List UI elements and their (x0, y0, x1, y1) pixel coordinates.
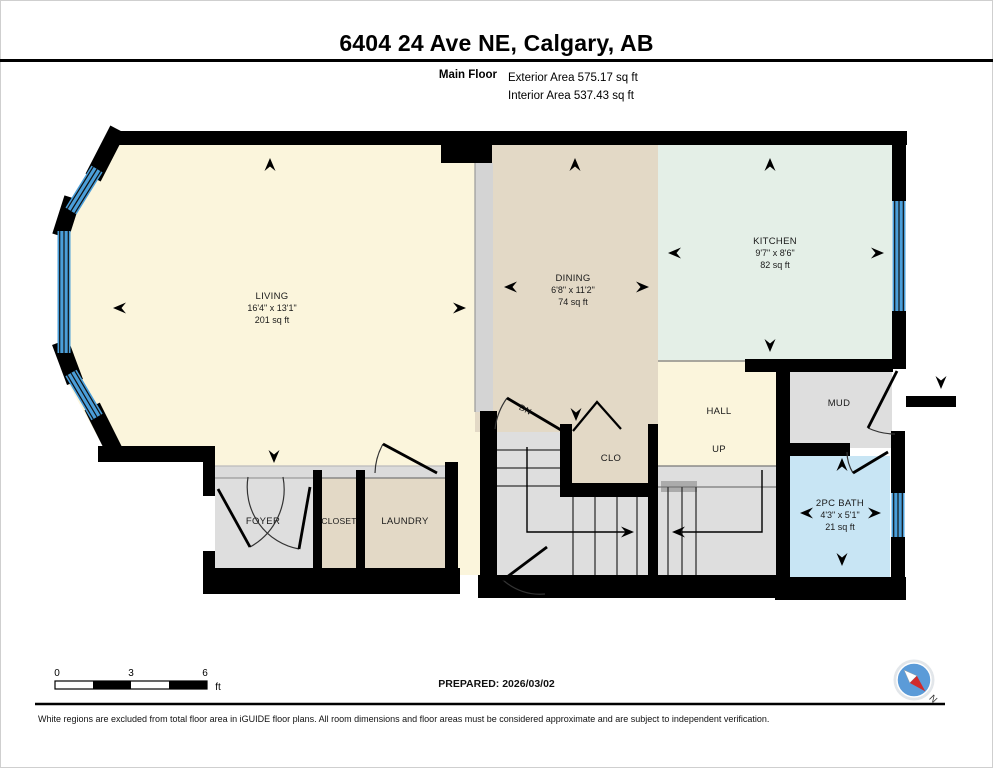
clo-label: CLO (601, 453, 621, 464)
living-dining-divider (475, 163, 493, 412)
kitchen-dims: 9'7" x 8'6" (755, 248, 794, 258)
disclaimer-text: White regions are excluded from total fl… (38, 714, 973, 724)
bath-window-icon (894, 493, 903, 537)
bay-window-mid-icon (60, 231, 69, 353)
bath-area: 21 sq ft (825, 522, 855, 532)
bath-label: 2PC BATH (816, 498, 864, 509)
foyer-label: FOYER (246, 516, 280, 527)
kitchen-label: KITCHEN (753, 236, 797, 247)
living-label: LIVING (256, 291, 289, 302)
back-entry-arrow (936, 376, 947, 389)
dining-dims: 6'8" x 11'2" (551, 285, 595, 295)
kitchen-window-icon (895, 201, 904, 311)
up-label: UP (712, 444, 726, 455)
dining-label: DINING (555, 273, 590, 284)
back-entry-stoop (906, 396, 956, 407)
floor-plan-svg: LIVING 16'4" x 13'1" 201 sq ft DINING 6'… (0, 0, 993, 768)
prepared-date: PREPARED: 2026/03/02 (0, 678, 993, 690)
foyer-threshold (215, 466, 455, 478)
kitchen-area: 82 sq ft (760, 260, 790, 270)
living-dims: 16'4" x 13'1" (247, 303, 296, 313)
laundry-label: LAUNDRY (381, 516, 429, 527)
hall-label: HALL (707, 406, 732, 417)
dining-area: 74 sq ft (558, 297, 588, 307)
bath-dims: 4'3" x 5'1" (820, 510, 859, 520)
closet-label: CLOSET (321, 516, 356, 526)
living-area: 201 sq ft (255, 315, 290, 325)
floorplan-page: 6404 24 Ave NE, Calgary, AB Main Floor E… (0, 0, 993, 768)
mud-label: MUD (828, 398, 851, 409)
